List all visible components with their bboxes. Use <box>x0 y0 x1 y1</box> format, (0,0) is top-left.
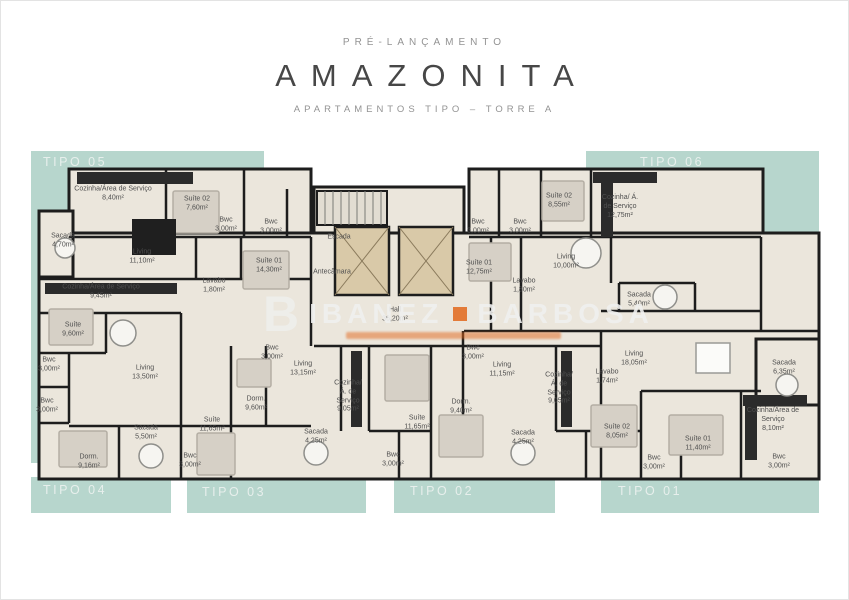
room-label: Bwc3,00m² <box>260 218 282 236</box>
watermark-initial: B <box>263 289 299 339</box>
floorplan-canvas: PRÉ-LANÇAMENTO AMAZONITA APARTAMENTOS TI… <box>0 0 849 600</box>
room-label: Living13,50m² <box>132 364 158 382</box>
room-label: Bwc3,00m² <box>382 451 404 469</box>
watermark-name-right: BARBOSA <box>477 298 654 330</box>
room-label: Suíte 0112,75m² <box>466 259 492 277</box>
room-label: Suíte 0114,30m² <box>256 257 282 275</box>
room-label: Sacada4,70m² <box>51 232 75 250</box>
room-label: Suíte11,65m² <box>404 414 429 432</box>
room-label: Bwc3,00m² <box>215 216 237 234</box>
room-label: Bwc3,00m² <box>179 452 201 470</box>
room-label: Cozinha/Área de Serviço8,10m² <box>740 407 806 433</box>
header: PRÉ-LANÇAMENTO AMAZONITA APARTAMENTOS TI… <box>1 37 848 115</box>
room-label: Living10,00m² <box>553 253 579 271</box>
room-label: Living18,05m² <box>621 350 647 368</box>
room-label: Living11,15m² <box>489 361 514 379</box>
watermark-name-left: IBANEZ <box>309 298 443 330</box>
room-label: Cozinha/Área de Serviço9,45m² <box>62 283 139 301</box>
room-label: Dorm.9,60m² <box>245 395 267 413</box>
page-subtitle: APARTAMENTOS TIPO – TORRE A <box>1 104 848 115</box>
unit-type-label: TIPO 05 <box>43 155 107 169</box>
room-label: Living13,15m² <box>290 360 316 378</box>
room-label: Sacada6,35m² <box>772 359 796 377</box>
room-label: Bwc3,00m² <box>509 218 531 236</box>
unit-type-label: TIPO 02 <box>410 484 474 498</box>
room-label: Sacada4,25m² <box>511 429 535 447</box>
page-title: AMAZONITA <box>1 58 849 94</box>
room-label: Cozinha/ Á. de Serviço9,05m² <box>330 380 366 415</box>
watermark-subline <box>346 332 561 339</box>
room-label: Escada <box>327 234 350 243</box>
room-label: Suíte 028,55m² <box>546 192 572 210</box>
unit-type-label: TIPO 01 <box>618 484 682 498</box>
room-label: Dorm.9,16m² <box>78 453 100 471</box>
room-label: Suíte 027,60m² <box>184 195 210 213</box>
room-label: Sacada5,50m² <box>134 424 158 442</box>
unit-type-label: TIPO 06 <box>640 155 704 169</box>
room-label: Lavabo1,80m² <box>203 277 226 295</box>
room-label: Bwc3,00m² <box>768 453 790 471</box>
room-label: Suíte 028,05m² <box>604 423 630 441</box>
room-label: Bwc3,00m² <box>643 454 665 472</box>
room-label: Living11,10m² <box>129 248 154 266</box>
pre-launch-label: PRÉ-LANÇAMENTO <box>1 37 848 48</box>
room-label: Bwc3,00m² <box>38 356 60 374</box>
room-label: Sacada4,25m² <box>304 428 328 446</box>
room-label: Cozinha/ Á. de Serviço12,75m² <box>601 194 639 220</box>
room-label: Suíte11,65m² <box>199 416 224 434</box>
room-label: Suíte 0111,40m² <box>685 435 711 453</box>
room-label: Bwc3,00m² <box>467 218 489 236</box>
room-label: Cozinha/Área de Serviço8,40m² <box>74 185 151 203</box>
room-label: Suíte9,60m² <box>62 321 84 339</box>
room-label: Lavabo1,74m² <box>596 368 619 386</box>
unit-type-label: TIPO 04 <box>43 483 107 497</box>
room-label: Dorm.9,40m² <box>450 398 472 416</box>
room-label: Bwc3,00m² <box>261 344 283 362</box>
room-label: Antecâmara <box>313 269 351 278</box>
room-label: Bwc3,00m² <box>462 344 484 362</box>
watermark-logo-square-icon <box>453 307 467 321</box>
unit-type-label: TIPO 03 <box>202 485 266 499</box>
room-label: Bwc3,00m² <box>36 397 58 415</box>
room-label: Cozinha/ Á. de Serviço9,05m² <box>541 372 577 407</box>
